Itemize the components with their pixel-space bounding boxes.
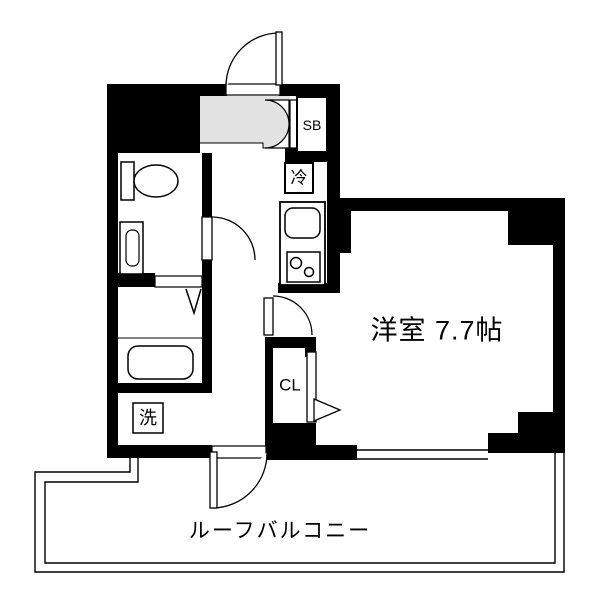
wall-toilet-east — [202, 153, 212, 393]
bathtub — [128, 346, 193, 379]
wall-se-step-1 — [488, 433, 518, 453]
toilet-tank — [121, 162, 134, 200]
balcony-door-leaf — [210, 452, 217, 508]
wall-kitchen-step — [340, 211, 351, 253]
balcony-label: ルーフバルコニー — [189, 521, 371, 542]
washbasin-sink — [126, 230, 139, 266]
wall-kitchen-east — [327, 84, 340, 293]
wall-se-step-3 — [553, 400, 565, 453]
washing-machine-label: 洗 — [139, 409, 157, 427]
entrance-threshold — [226, 84, 280, 95]
wall-toilet-south — [107, 273, 155, 287]
kitchen-sink — [285, 208, 320, 238]
wall-south-west — [107, 445, 212, 458]
wall-se-step-2 — [518, 412, 553, 453]
closet-label: CL — [279, 377, 301, 394]
floorplan-drawing — [0, 0, 600, 600]
wall-top-left-mass — [107, 84, 200, 153]
closet-door-arrow — [314, 399, 340, 421]
walls — [107, 84, 565, 460]
bath-folding-door-symbol — [186, 289, 201, 313]
wall-west — [107, 84, 118, 458]
refrigerator-label: 冷 — [291, 170, 308, 187]
entrance-door-leaf — [276, 32, 282, 85]
floorplan: 洋室 7.7帖 ルーフバルコニー SB 冷 CL 洗 — [0, 0, 600, 600]
balcony-door-arc — [213, 452, 267, 508]
toilet-door-arc — [212, 217, 255, 260]
wall-closet-south-block — [265, 423, 316, 458]
wall-top-left-of-entrance — [200, 84, 227, 96]
stove-burner-large — [291, 258, 302, 269]
mainroom-door-leaf — [264, 298, 273, 335]
balcony-threshold — [212, 446, 266, 458]
balcony-outline-outer — [35, 453, 564, 572]
bath-threshold — [155, 276, 202, 287]
main-room-label: 洋室 7.7帖 — [370, 318, 503, 345]
wall-bath-south — [107, 383, 212, 393]
toilet-bowl — [134, 165, 178, 197]
balcony-outline-inner — [45, 453, 555, 563]
entrance-floor — [200, 96, 290, 148]
shoebox-label: SB — [303, 118, 322, 132]
toilet-door-leaf — [202, 217, 212, 260]
stove-burner-small — [305, 268, 314, 277]
mainroom-door-arc — [273, 296, 312, 335]
entrance-door-arc — [226, 33, 279, 86]
